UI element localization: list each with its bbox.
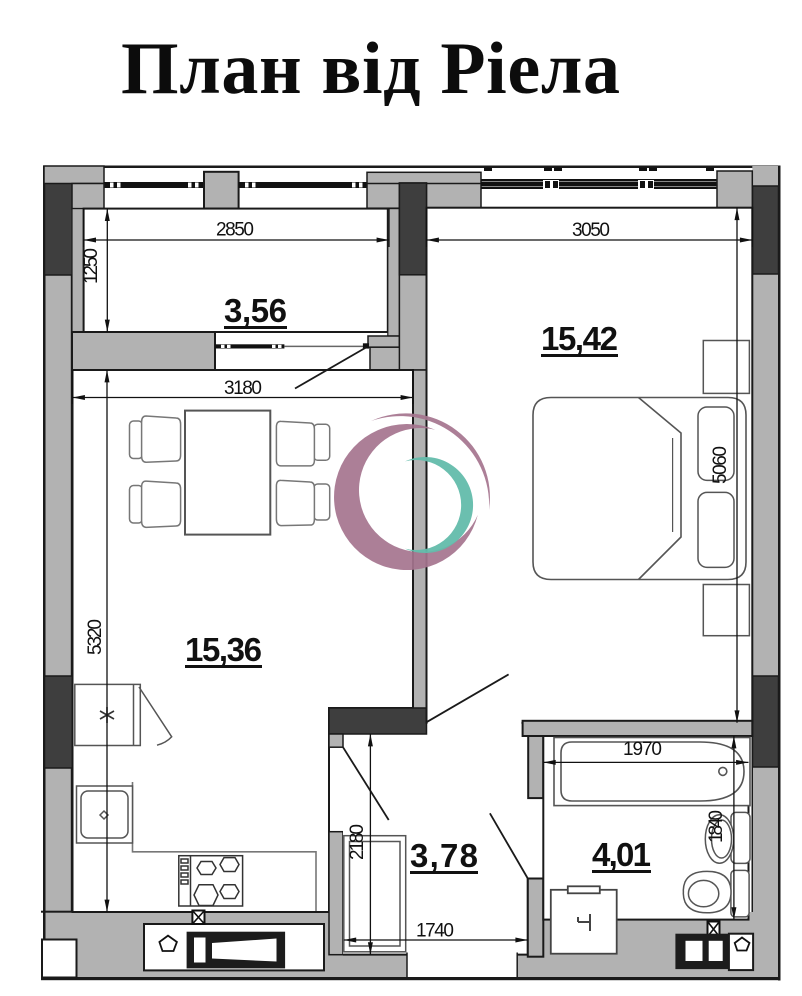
svg-text:2180: 2180	[347, 824, 368, 860]
svg-text:5320: 5320	[85, 619, 106, 655]
svg-text:15,36: 15,36	[185, 631, 262, 668]
svg-text:План від Ріела: План від Ріела	[121, 28, 620, 110]
svg-text:1840: 1840	[706, 810, 727, 843]
svg-text:3,56: 3,56	[224, 292, 287, 329]
svg-text:1250: 1250	[81, 248, 102, 284]
svg-text:1970: 1970	[623, 739, 662, 760]
svg-text:4,01: 4,01	[592, 836, 651, 873]
svg-text:3180: 3180	[224, 378, 262, 399]
svg-text:3050: 3050	[572, 220, 610, 241]
svg-text:15,42: 15,42	[541, 320, 618, 357]
svg-text:1740: 1740	[416, 921, 454, 942]
svg-text:2850: 2850	[216, 220, 254, 241]
svg-text:3,78: 3,78	[410, 837, 478, 874]
svg-text:5060: 5060	[710, 446, 731, 484]
